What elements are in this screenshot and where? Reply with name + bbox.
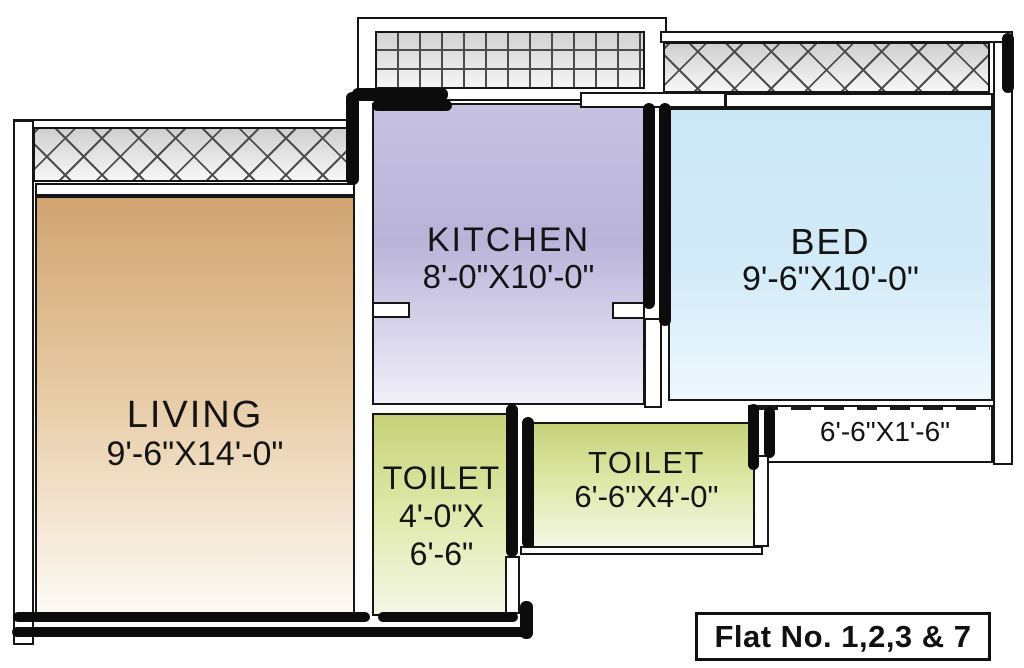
room-toilet2-dims: 6'-6"X4'-0" xyxy=(532,480,761,514)
wall-toilet2-bottom xyxy=(520,546,763,555)
flat-number-box: Flat No. 1,2,3 & 7 xyxy=(695,612,991,661)
wall-bar-bottom-outer xyxy=(12,627,528,637)
label-bed: BED 9'-6"X10'-0" xyxy=(668,223,993,297)
sill-bed-top xyxy=(725,93,993,108)
room-toilet1-name: TOILET xyxy=(372,459,511,497)
wall-kitchen-bed-lower xyxy=(644,318,662,408)
wall-bar-balcony-2 xyxy=(764,407,775,458)
window-living-top xyxy=(35,183,355,196)
room-living-name: LIVING xyxy=(35,394,355,436)
wall-bar-bottom-corner xyxy=(520,601,533,639)
room-toilet1-dims-2: 6'-6" xyxy=(372,535,511,573)
room-living-dims: 9'-6"X14'-0" xyxy=(35,436,355,473)
wall-bar-kitchen-top-inner xyxy=(372,100,452,111)
label-toilet-1: TOILET 4'-0"X 6'-6" xyxy=(372,459,511,573)
floor-plan: LIVING 9'-6"X14'-0" KITCHEN 8'-0"X10'-0"… xyxy=(0,0,1024,668)
room-bed-dims: 9'-6"X10'-0" xyxy=(668,261,993,297)
label-kitchen: KITCHEN 8'-0"X10'-0" xyxy=(372,221,645,294)
label-toilet-2: TOILET 6'-6"X4'-0" xyxy=(532,446,761,514)
door-jamb-kitchen-left xyxy=(372,302,410,318)
label-balcony-right: 6'-6"X1'-6" xyxy=(780,416,990,448)
balcony-right-dims: 6'-6"X1'-6" xyxy=(780,416,990,448)
room-kitchen-name: KITCHEN xyxy=(372,221,645,259)
room-toilet2-name: TOILET xyxy=(532,446,761,480)
wall-left-outer xyxy=(13,120,34,645)
balcony-hatch-left xyxy=(33,127,355,182)
wall-bar-bottom-inner-a xyxy=(13,612,370,622)
wall-right-outer xyxy=(993,35,1013,465)
wall-bar-top-right xyxy=(1002,33,1014,93)
balcony-hatch-right xyxy=(663,42,990,93)
label-living: LIVING 9'-6"X14'-0" xyxy=(35,394,355,473)
door-jamb-kitchen-right xyxy=(612,302,645,319)
room-kitchen-dims: 8'-0"X10'-0" xyxy=(372,259,645,294)
dashed-balcony-line xyxy=(758,406,990,410)
room-toilet1-dims-1: 4'-0"X xyxy=(372,497,511,535)
wall-bar-living-kitchen xyxy=(346,92,359,185)
room-bed-name: BED xyxy=(668,223,993,261)
flat-number-label: Flat No. 1,2,3 & 7 xyxy=(714,619,971,655)
balcony-grid-top xyxy=(375,31,645,89)
wall-bar-bottom-inner-b xyxy=(378,612,518,622)
